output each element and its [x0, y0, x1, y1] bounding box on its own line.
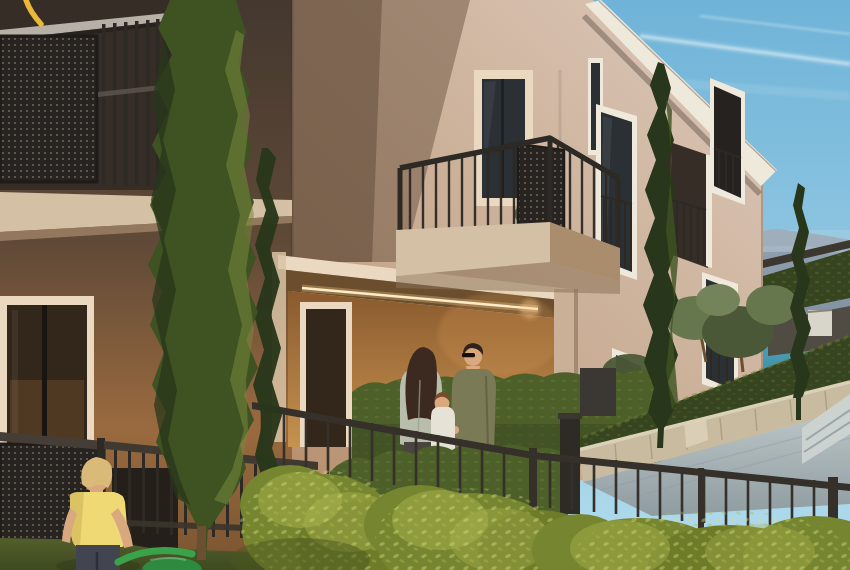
- facade-shadow-deep: [292, 0, 382, 262]
- scene-svg: [0, 0, 850, 570]
- balcony-mesh-insert: [518, 144, 564, 232]
- bushes-right: [532, 510, 850, 570]
- render-canvas: [0, 0, 850, 570]
- sunglasses: [462, 353, 475, 357]
- french-door-corner: [710, 78, 745, 205]
- utility-box: [580, 368, 616, 416]
- balcony-mesh-panel: [0, 36, 97, 182]
